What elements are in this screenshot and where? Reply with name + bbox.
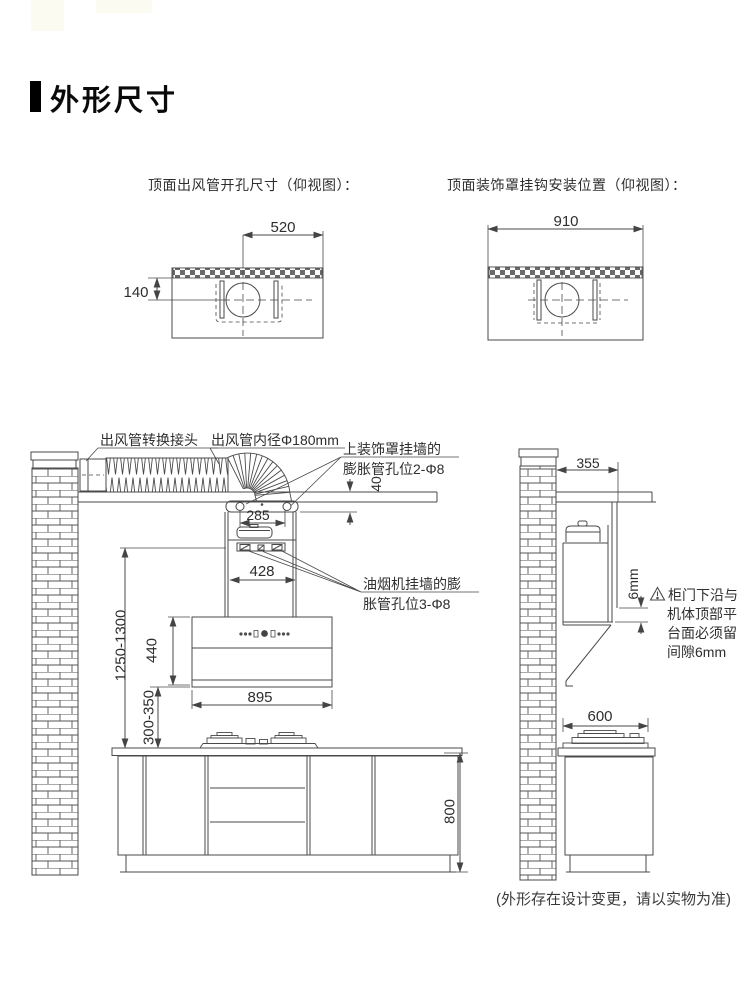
dim-440: 440 — [144, 631, 161, 671]
stove-front — [200, 733, 318, 749]
duct-diameter-label: 出风管内径Φ180mm — [211, 430, 339, 450]
dim-895: 895 — [240, 689, 280, 706]
control-panel-icons — [240, 631, 289, 638]
cabinet-side — [558, 748, 655, 872]
dim-6mm: 6mm — [625, 562, 641, 606]
cabinet-front — [112, 748, 462, 872]
design-change-footnote: (外形存在设计变更，请以实物为准) — [496, 888, 731, 909]
duct-opening-title: 顶面出风管开孔尺寸（仰视图）： — [148, 175, 359, 195]
duct-opening-diagram — [148, 231, 323, 338]
warning-icon — [651, 588, 665, 601]
cabinet-gap-warning-line1: 柜门下沿与 — [668, 586, 738, 605]
cabinet-gap-warning-line3: 台面必须留 — [667, 624, 737, 643]
duct-bend — [228, 453, 292, 501]
dimension-drawing-page: 外形尺寸 — [0, 0, 750, 985]
wall-bracket — [237, 543, 285, 551]
cabinet-gap-warning-line2: 机体顶部平 — [667, 605, 737, 624]
dim-285: 285 — [238, 507, 278, 523]
hook-position-diagram — [488, 225, 643, 340]
dim-800: 800 — [442, 792, 459, 832]
hood-holes-label-line2: 胀管孔位3-Φ8 — [363, 594, 450, 614]
dim-355: 355 — [568, 455, 608, 471]
duct-adapter-label: 出风管转换接头 — [100, 430, 198, 450]
dim-300-350: 300-350 — [141, 683, 158, 753]
dim-1250-1300: 1250-1300 — [113, 606, 130, 686]
hood-body — [192, 617, 332, 687]
dim-520: 520 — [258, 219, 308, 236]
hood-holes-label-line1: 油烟机挂墙的膨 — [363, 574, 461, 594]
hood-side — [563, 543, 613, 686]
cover-holes-label-line2: 膨胀管孔位2-Φ8 — [343, 459, 444, 479]
dim-40: 40 — [368, 469, 384, 499]
dim-600: 600 — [580, 708, 620, 725]
side-view-drawing — [519, 449, 665, 880]
cover-holes-label-line1: 上装饰罩挂墙的 — [343, 439, 441, 459]
dim-910: 910 — [541, 213, 591, 230]
cabinet-gap-warning-line4: 间隙6mm — [667, 643, 726, 662]
dim-140: 140 — [118, 284, 154, 301]
damper-bracket — [237, 525, 272, 539]
duct-adapter-side — [566, 521, 600, 542]
stove-side — [563, 731, 648, 749]
hook-position-title: 顶面装饰罩挂钩安装位置（仰视图）： — [447, 175, 687, 195]
dim-428: 428 — [242, 563, 282, 580]
